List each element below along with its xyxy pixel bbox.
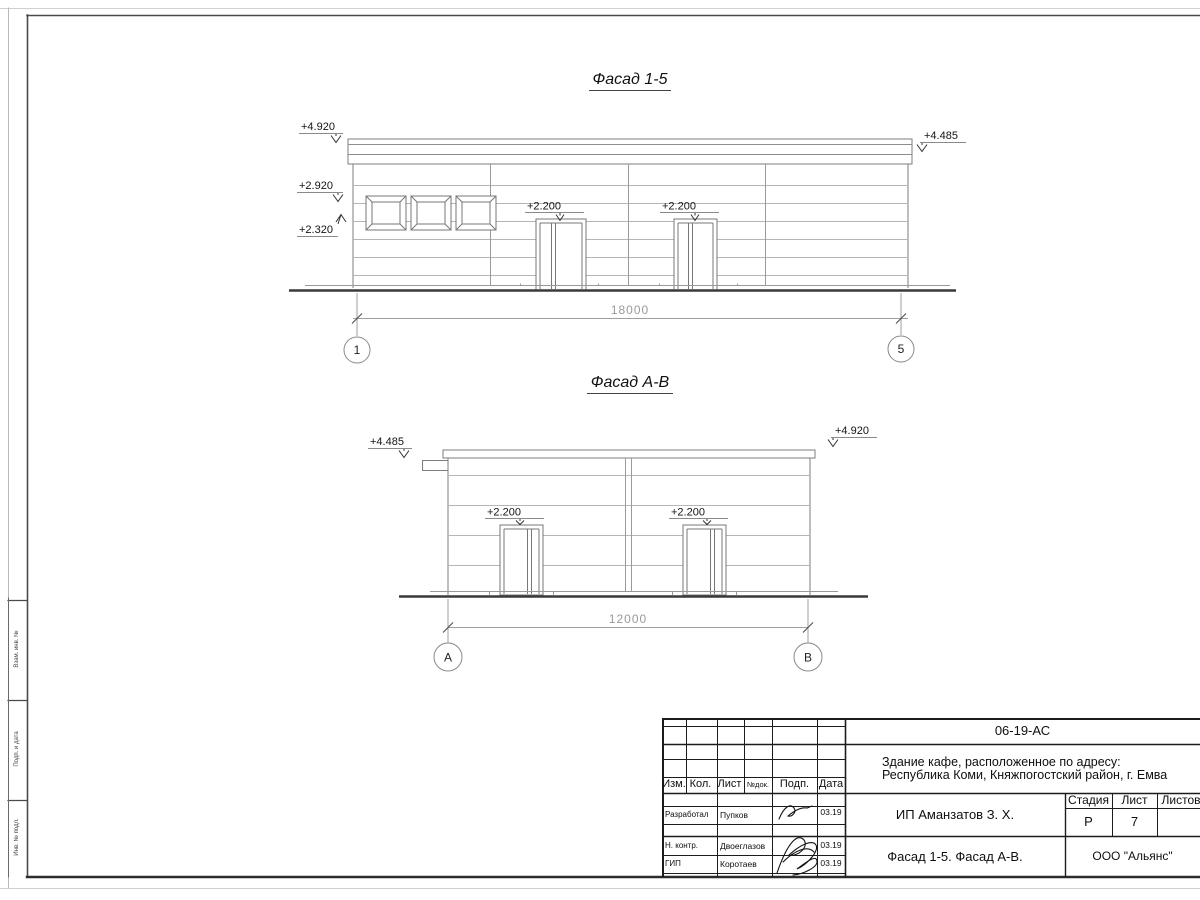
elevation-mark-4920: +4.920 (301, 121, 335, 133)
facade1-title: Фасад 1-5 (550, 71, 710, 89)
sheets-label: Листов (1157, 793, 1200, 808)
col-izm: Изм. (662, 777, 686, 793)
company-name: ООО "Альянс" (1065, 836, 1200, 877)
col-podp: Подп. (772, 777, 817, 793)
facade1-title-text: Фасад 1-5 (589, 71, 672, 91)
client-name: ИП Аманзатов З. Х. (845, 793, 1065, 836)
door-2 (674, 219, 717, 290)
signature-pupkov (779, 806, 812, 819)
stage-value: Р (1065, 808, 1112, 836)
facade-a-b-drawing: +2.200 +2.200 +4.485 +4.920 12000 А В (368, 425, 877, 671)
door-1 (536, 219, 586, 290)
staff-date-1: 03.19 (817, 804, 845, 820)
staff-name-pupkov: Пупков (720, 806, 772, 824)
facade2-title-text: Фасад А-В (587, 374, 673, 394)
frame-label-podp-data: Подп. и дата (14, 717, 20, 781)
col-data: Дата (817, 777, 845, 793)
windows-row (366, 196, 496, 230)
project-address-line2: Республика Коми, Княжпогостский район, г… (882, 769, 1167, 782)
elevation-mark-4485: +4.485 (924, 130, 958, 142)
frame-label-vzam-inv: Взам. инв. № (14, 617, 20, 681)
facade2-title: Фасад А-В (550, 374, 710, 392)
project-address: Здание кафе, расположенное по адресу: Ре… (845, 745, 1200, 793)
staff-role-gip: ГИП (665, 855, 717, 873)
facade-1-5-drawing: +2.200 +2.200 +4.920 +2.920 +2.320 +4.48… (289, 121, 966, 363)
col-ndok: №док. (744, 777, 772, 793)
staff-role-nkontr: Н. контр. (665, 837, 717, 855)
staff-name-dvoeglazov: Двоеглазов (720, 837, 772, 855)
axis-bubble-b: В (804, 651, 812, 665)
door-1-level-mark: +2.200 (527, 201, 561, 213)
sheet-value: 7 (1112, 808, 1157, 836)
axis-bubble-1: 1 (354, 343, 361, 357)
door-2-level-mark: +2.200 (671, 507, 705, 519)
elevation-mark-4920: +4.920 (835, 425, 869, 437)
sheet-label: Лист (1112, 793, 1157, 808)
facade1-dimension: 18000 (611, 303, 649, 317)
signatures (777, 806, 817, 875)
elevation-mark-2920: +2.920 (299, 180, 333, 192)
facade2-dimension: 12000 (609, 612, 647, 626)
door-1 (500, 525, 543, 595)
staff-name-korotaev: Коротаев (720, 855, 772, 873)
staff-role-razrabotal: Разработал (665, 806, 717, 824)
doc-number: 06-19-АС (845, 718, 1200, 744)
door-2-level-mark: +2.200 (662, 201, 696, 213)
axis-bubble-5: 5 (898, 342, 905, 356)
elevation-mark-2320: +2.320 (299, 224, 333, 236)
frame-label-inv-podl: Инв. № подл. (14, 805, 20, 869)
staff-date-3: 03.19 (817, 856, 845, 870)
axis-bubble-a: А (444, 651, 452, 665)
col-list: Лист (715, 777, 744, 793)
col-kol: Кол. (686, 777, 715, 793)
stage-label: Стадия (1065, 793, 1112, 808)
signature-korotaev (777, 838, 817, 875)
door-2 (683, 525, 726, 595)
drawing-sheet: +2.200 +2.200 +4.920 +2.920 +2.320 +4.48… (0, 0, 1200, 900)
elevation-mark-4485: +4.485 (370, 436, 404, 448)
sheet-title: Фасад 1-5. Фасад А-В. (845, 836, 1065, 877)
staff-date-2: 03.19 (817, 838, 845, 852)
door-1-level-mark: +2.200 (487, 507, 521, 519)
